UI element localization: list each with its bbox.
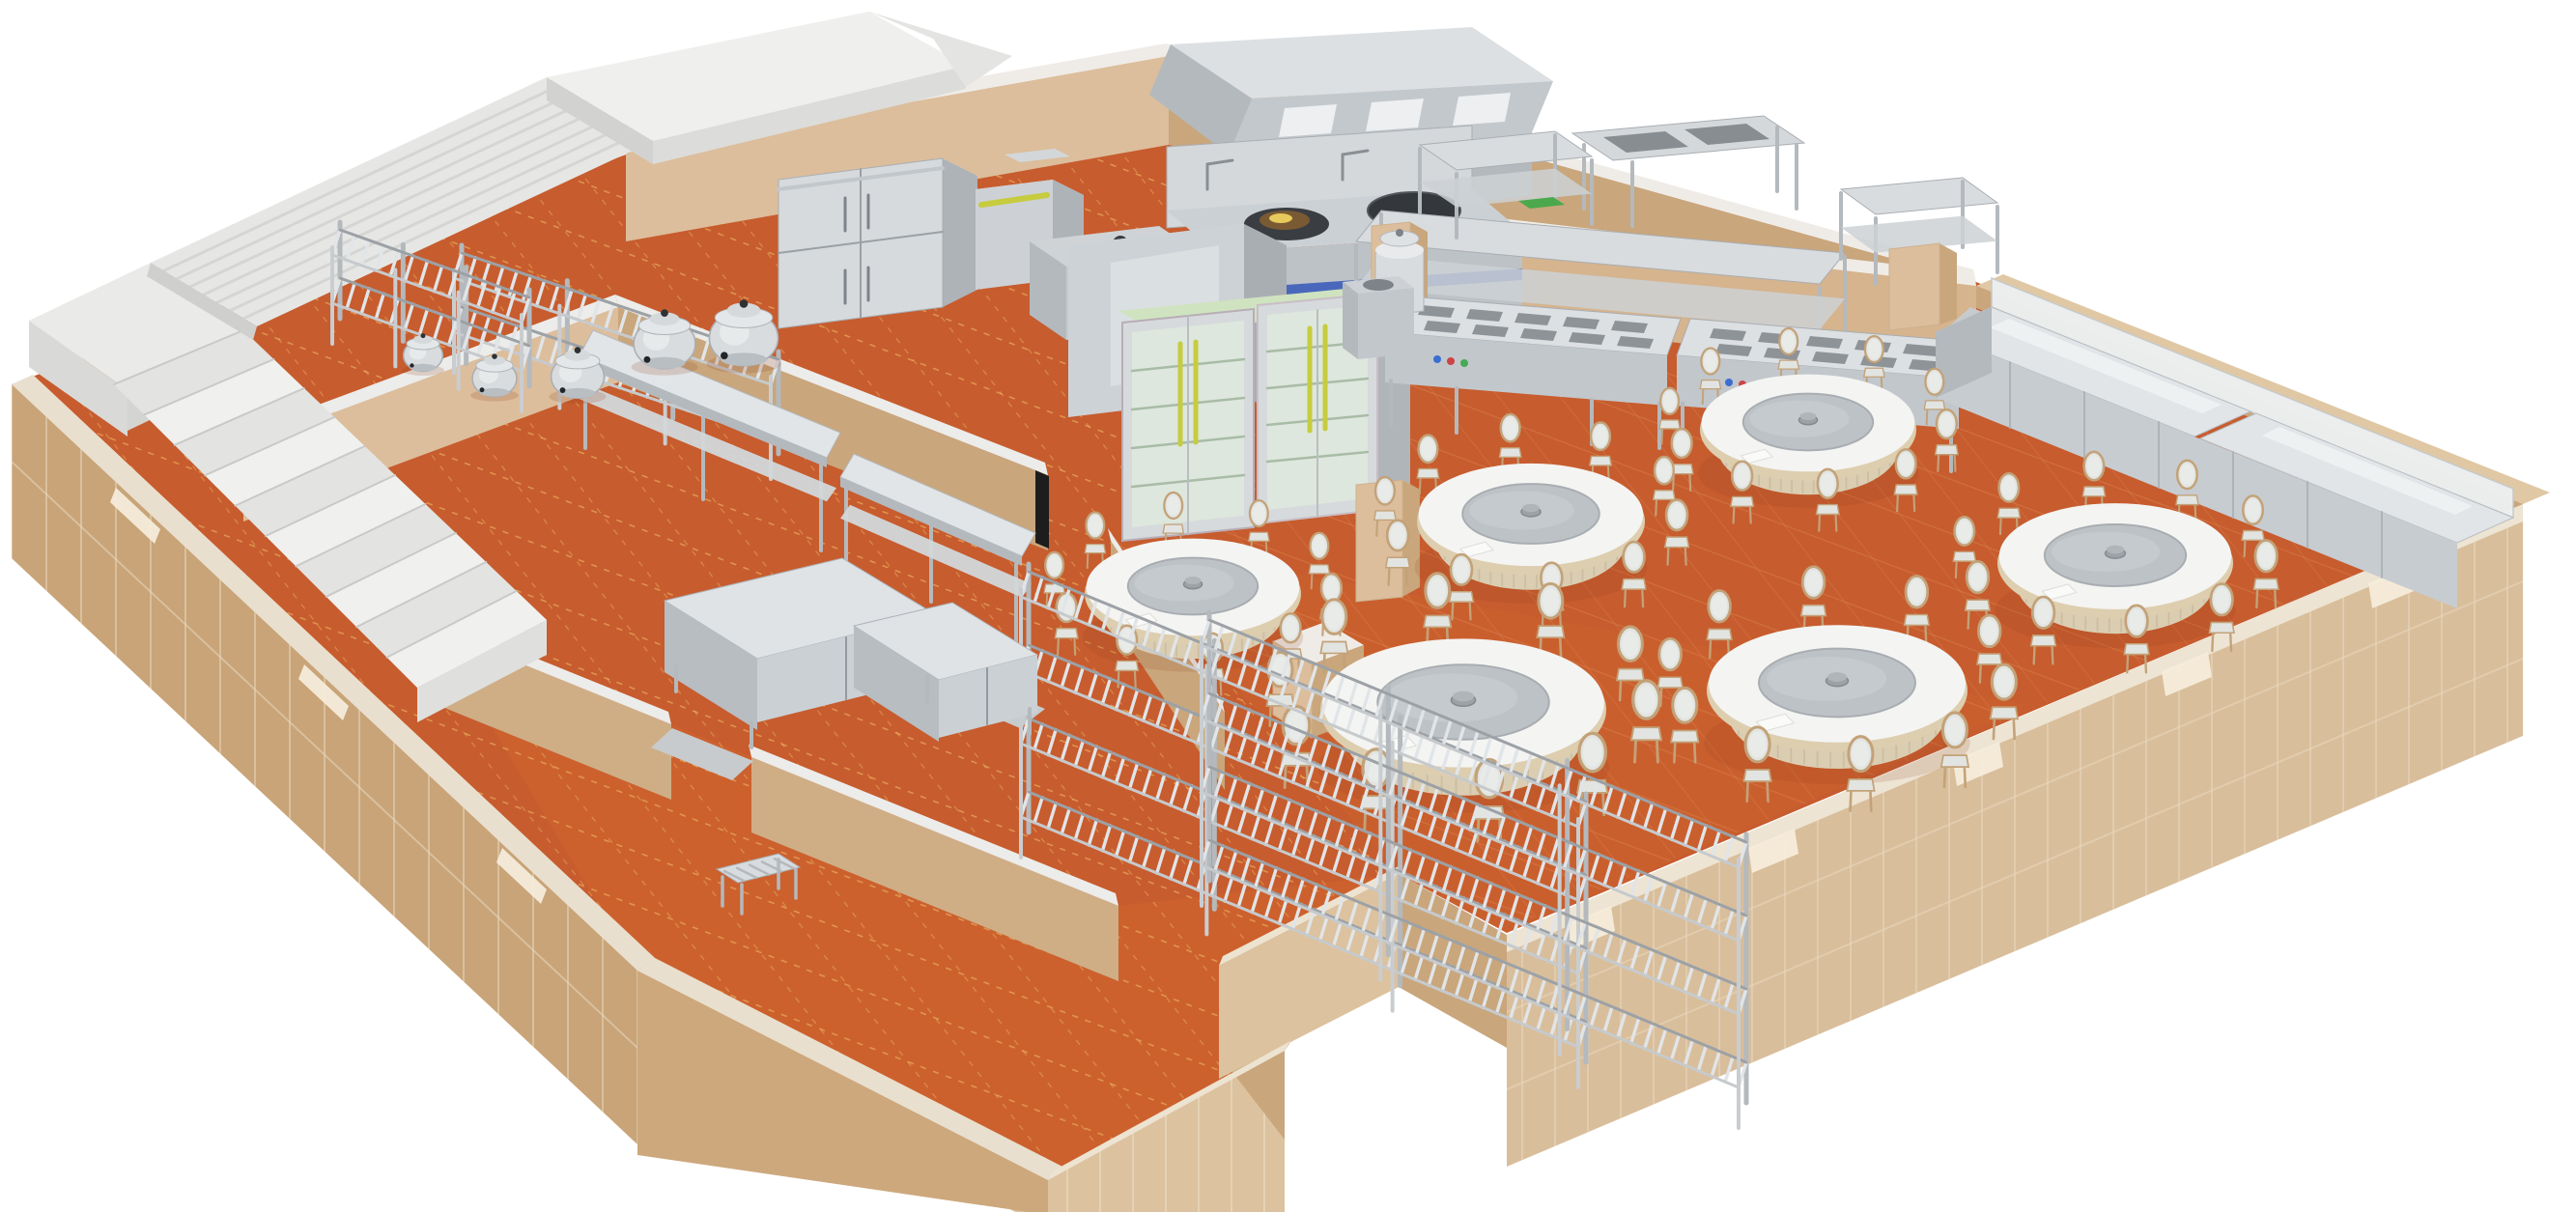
round-sink-stand <box>1343 276 1414 359</box>
upright-fridge-4door <box>778 158 977 328</box>
scene-svg: 3D isometric rendering of a commercial r… <box>0 0 2576 1212</box>
tiled-pillar <box>1889 243 1957 330</box>
floor-plan-canvas: 3D isometric rendering of a commercial r… <box>0 0 2576 1212</box>
